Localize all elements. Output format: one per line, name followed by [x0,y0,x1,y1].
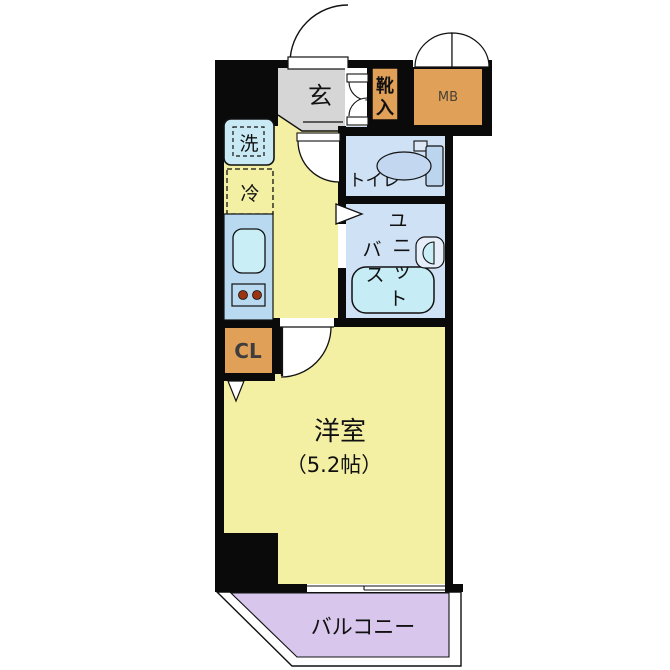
stove-burner-left [239,291,248,300]
genkan-door-leaf [297,133,340,141]
toilet-cistern-lid [414,141,427,151]
stove-burner-right [253,291,262,300]
wall-right-of-mb [483,60,492,136]
unit-bath-char-4: ト [388,288,407,310]
kitchen: 洗 冷 [224,119,274,320]
wall-top-left-block [215,60,278,126]
wall-under-shoebox [367,120,413,129]
closet-label: CL [234,339,262,363]
unit-bath-char-1: ユ [388,210,407,232]
wall-window-right-stub [443,584,463,592]
floorplan-drawing: バルコニー 靴 入 MB CL [0,0,670,670]
washer-label: 洗 [239,133,258,155]
meter-box-label: MB [438,90,458,105]
shoe-cabinet-label-1: 靴 [376,75,394,97]
wall-hall-room-right [334,318,453,327]
wall-right-of-closet [273,327,281,374]
toilet-bowl [377,152,431,180]
wall-bottom [215,584,308,592]
shoe-door-leaf-bottom [347,117,368,125]
room-door-opening [280,318,334,327]
unit-bath-char-5: バ [362,239,381,261]
wall-right [445,126,453,592]
window-opening [307,584,445,592]
wall-below-mb-toilet-top [338,127,492,136]
balcony-window [307,584,445,592]
floorplan-canvas: バルコニー 靴 入 MB CL [0,0,670,670]
entrance-door-leaf [288,57,348,69]
balcony-label: バルコニー [311,615,416,639]
kitchen-sink [233,229,265,273]
fridge-label: 冷 [240,183,259,205]
shoe-cabinet-label-2: 入 [376,98,394,119]
bath-door-opening [338,224,346,268]
wall-toilet-bath-divider [338,196,453,204]
wall-bottom-left-block [215,533,278,592]
western-room-label: 洋室 [314,417,366,447]
wall-left [215,60,224,533]
shoe-cabinet-doors [345,68,368,126]
western-room-size: （5.2帖） [286,453,382,477]
wall-below-closet [215,374,275,381]
unit-bath-char-6: ス [365,264,384,286]
unit-bath-char-3: ッ [392,260,411,282]
shoe-door-leaf-top [347,74,368,82]
unit-bath-char-2: ニ [392,235,411,257]
genkan-label: 玄 [308,82,332,110]
